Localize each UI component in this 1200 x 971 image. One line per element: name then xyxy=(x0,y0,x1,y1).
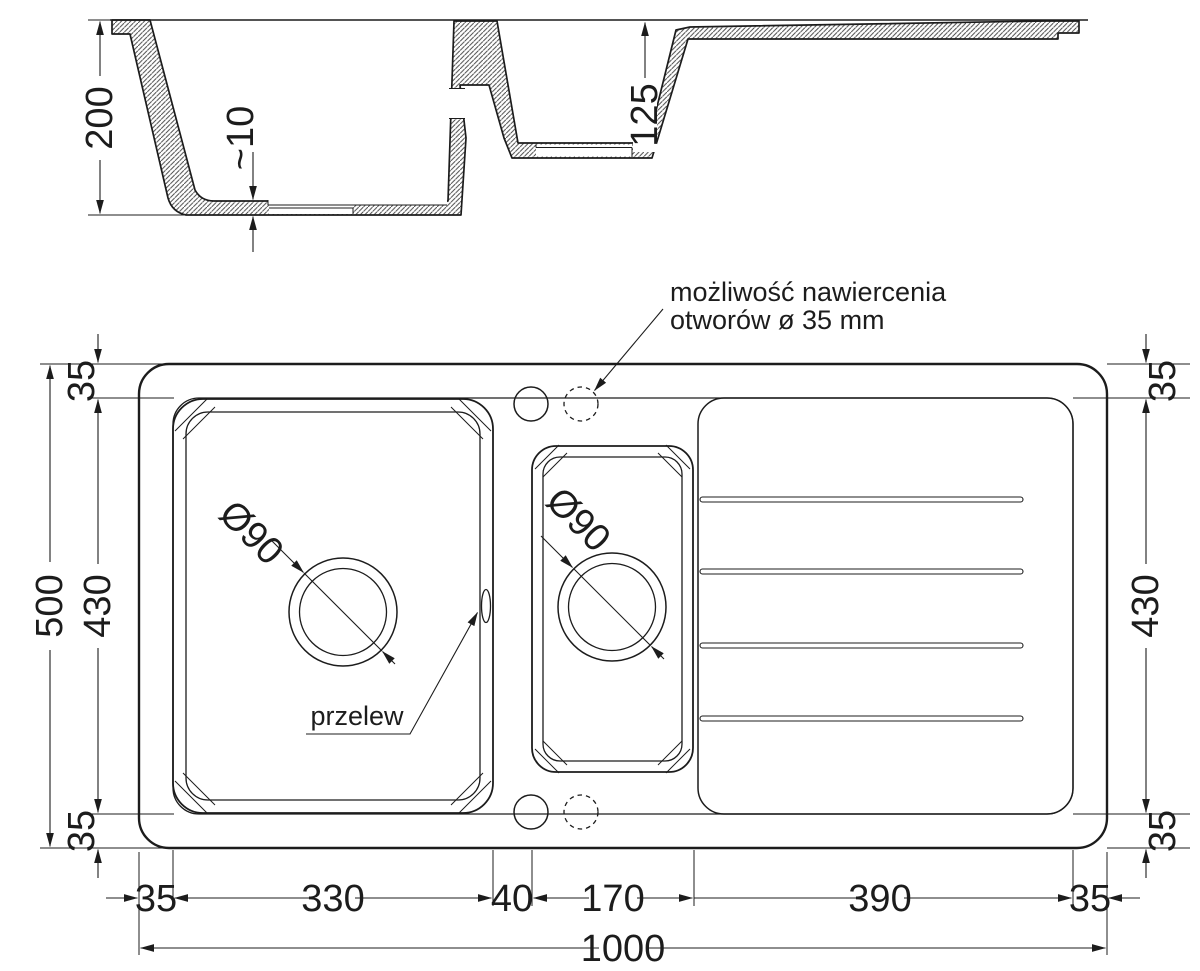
tap-holes xyxy=(514,387,598,829)
overflow-slot xyxy=(449,88,466,119)
main-bowl-drain: Ø90 xyxy=(211,493,397,666)
small-drain-label: Ø90 xyxy=(538,480,618,560)
sink-technical-drawing: 200 ~10 125 xyxy=(0,0,1200,971)
main-bowl xyxy=(173,399,493,813)
dims-right: 430 35 35 xyxy=(1073,334,1190,878)
cross-section-view: 200 ~10 125 xyxy=(79,20,1088,252)
small-bowl-drain-recess xyxy=(536,145,632,158)
dim-top-margin-left-label: 35 xyxy=(61,360,103,402)
dim-top-margin-right-label: 35 xyxy=(1142,360,1184,402)
dim-overall-width-label: 1000 xyxy=(581,928,666,970)
tap-hole-top xyxy=(514,387,548,421)
tap-hole-top-optional xyxy=(564,387,598,421)
dims-bottom: 35 330 40 170 390 35 1000 xyxy=(106,850,1140,970)
drill-note: możliwość nawiercenia otworów ø 35 mm xyxy=(595,277,948,391)
dim-drainer-label: 390 xyxy=(848,878,911,920)
dim-bottom-margin-right-label: 35 xyxy=(1142,810,1184,852)
dim-depth-total-label: 200 xyxy=(79,86,121,149)
dim-left-margin-label: 35 xyxy=(135,878,177,920)
main-drain-label: Ø90 xyxy=(211,493,291,573)
dim-overall-height-label: 500 xyxy=(29,574,71,637)
dim-inner-height-right-label: 430 xyxy=(1125,574,1167,637)
dim-floor-thickness-label: ~10 xyxy=(220,106,262,170)
dim-depth-small-bowl-label: 125 xyxy=(624,83,666,146)
tap-hole-bottom-optional xyxy=(564,795,598,829)
dim-floor-thickness: ~10 xyxy=(220,106,262,252)
dim-small-bowl-label: 170 xyxy=(581,878,644,920)
dim-inner-height-left-label: 430 xyxy=(77,574,119,637)
overflow-mark xyxy=(482,590,491,623)
dim-main-bowl-label: 330 xyxy=(301,878,364,920)
overflow-label: przelew xyxy=(310,701,404,731)
drainer-board xyxy=(698,398,1073,814)
main-bowl-corner-chamfers xyxy=(175,399,491,813)
sink-inner-edge xyxy=(173,398,1073,814)
dim-bottom-margin-left-label: 35 xyxy=(61,810,103,852)
dim-right-margin-label: 35 xyxy=(1069,878,1111,920)
dim-depth-small-bowl: 125 xyxy=(624,23,666,152)
drainer-grooves xyxy=(700,497,1023,721)
drill-note-line2: otworów ø 35 mm xyxy=(670,305,885,335)
small-bowl-drain: Ø90 xyxy=(538,480,666,661)
sink-outer-edge xyxy=(139,364,1107,848)
tap-hole-bottom xyxy=(514,795,548,829)
plan-view: możliwość nawiercenia otworów ø 35 mm Ø9… xyxy=(29,277,1190,970)
overflow-annotation: przelew xyxy=(306,590,491,735)
dims-left: 500 430 35 35 xyxy=(29,334,174,878)
drill-note-line1: możliwość nawiercenia xyxy=(670,277,947,307)
dim-divider-label: 40 xyxy=(491,878,533,920)
